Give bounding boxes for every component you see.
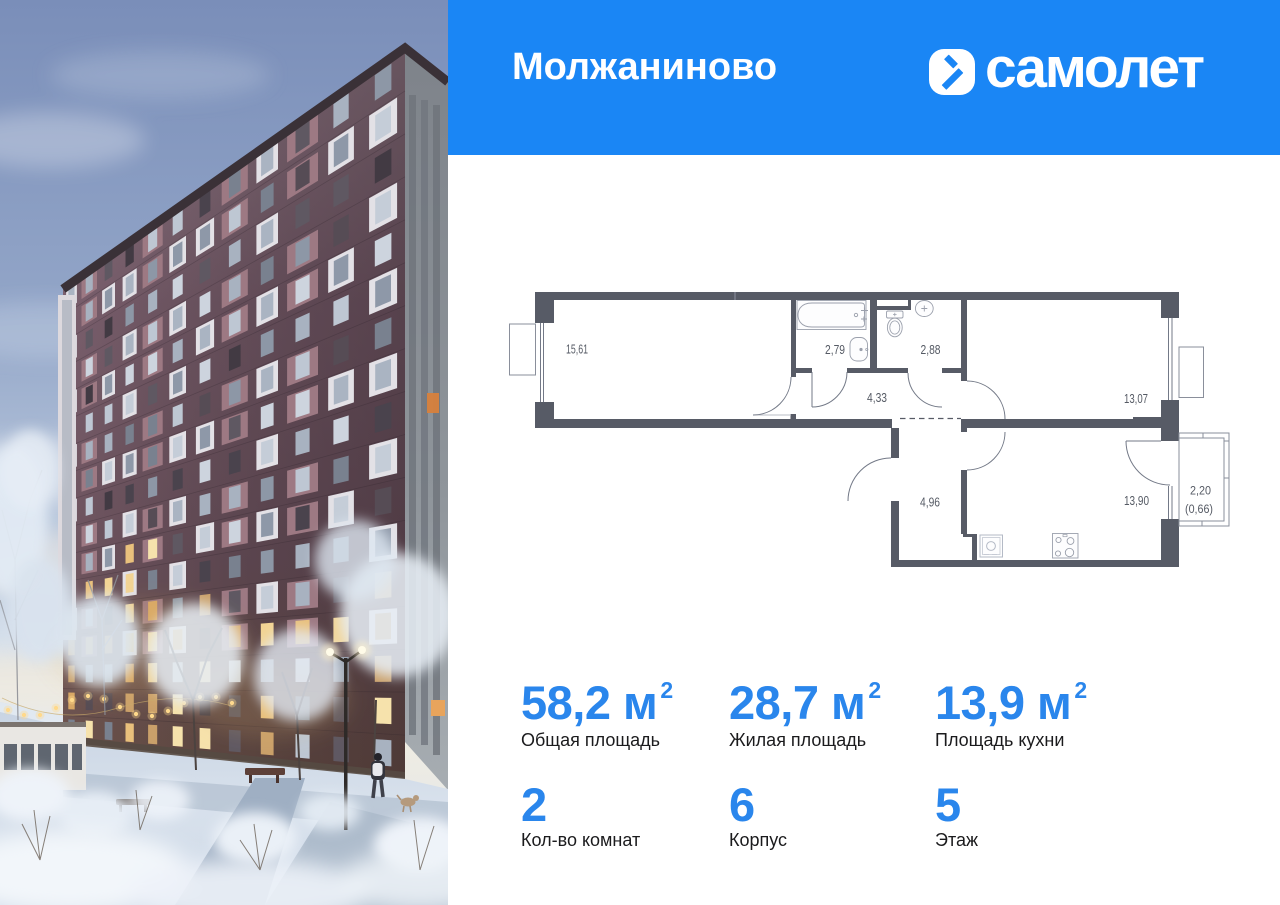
svg-text:15,61: 15,61 bbox=[566, 343, 588, 357]
svg-text:4,96: 4,96 bbox=[920, 495, 940, 509]
svg-text:2,20: 2,20 bbox=[1190, 485, 1211, 497]
svg-text:4,33: 4,33 bbox=[867, 391, 887, 405]
svg-text:2,79: 2,79 bbox=[825, 343, 845, 357]
svg-text:13,90: 13,90 bbox=[1124, 494, 1149, 508]
svg-text:2,88: 2,88 bbox=[921, 343, 941, 357]
svg-text:(0,66): (0,66) bbox=[1185, 504, 1213, 516]
svg-text:13,07: 13,07 bbox=[1124, 392, 1148, 406]
